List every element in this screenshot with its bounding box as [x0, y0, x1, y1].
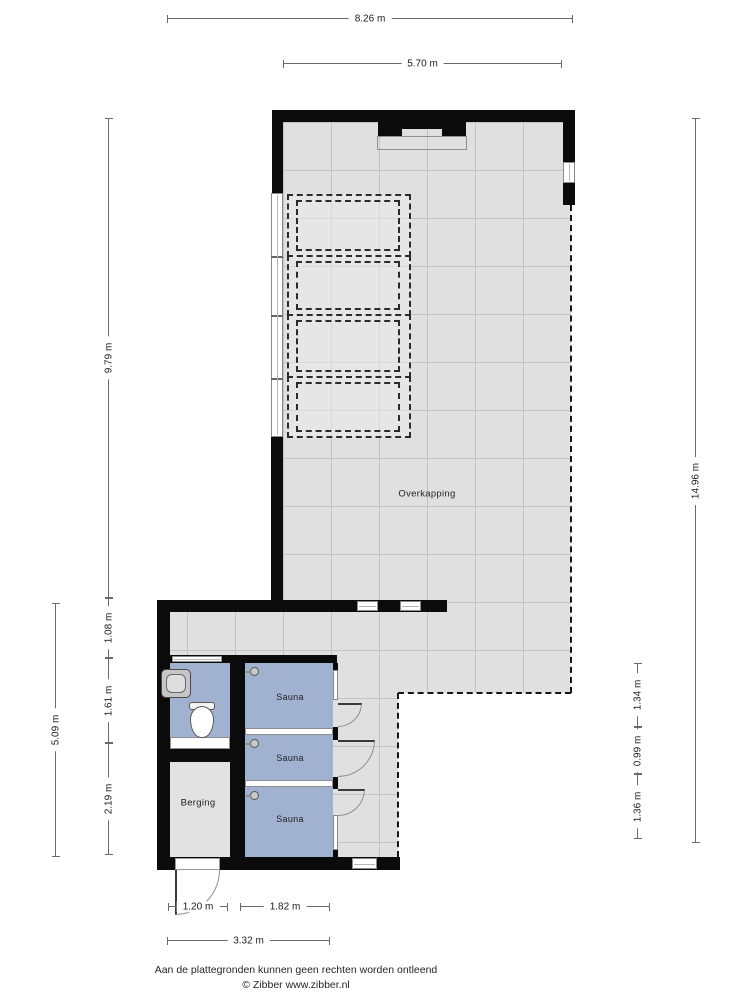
sink-icon — [161, 669, 191, 698]
sauna-light-icon — [250, 667, 259, 676]
door-opening-berging — [175, 858, 220, 870]
room-label-overkapping: Overkapping — [398, 489, 455, 500]
skylight-dashed-rect — [287, 376, 411, 438]
dim-label: 1.20 m — [177, 901, 220, 912]
window-bathroom-top — [172, 656, 222, 662]
boundary-dashed-right — [570, 205, 572, 693]
boundary-dashed-mid — [397, 693, 399, 857]
dim-right-sauna-2: 0.99 m — [637, 727, 638, 774]
skylight-inner-rect — [296, 261, 400, 310]
dim-bottom-berging: 1.20 m — [168, 906, 228, 907]
dim-bottom-total: 3.32 m — [167, 940, 330, 941]
dim-right-total: 14.96 m — [695, 118, 696, 843]
dim-left-overkapping-height: 9.79 m — [108, 118, 109, 598]
room-berging — [170, 762, 230, 857]
window-lowerbuilding-top-2 — [400, 601, 421, 611]
window-right — [563, 162, 575, 183]
wall-lowerbuilding-left — [157, 612, 170, 870]
room-label-sauna-3: Sauna — [276, 814, 304, 824]
dim-label: 5.09 m — [51, 709, 62, 752]
sauna-front-post — [333, 663, 338, 670]
window-lowerbuilding-top-1 — [357, 601, 378, 611]
room-label-berging: Berging — [181, 798, 216, 809]
dim-right-sauna-1: 1.34 m — [637, 663, 638, 727]
dim-left-berging: 2.19 m — [108, 743, 109, 855]
floorplan-canvas: Overkapping Sauna Sauna Sauna Berging 8.… — [0, 0, 750, 1000]
skylight-inner-rect — [296, 382, 400, 432]
sauna-light-icon — [250, 739, 259, 748]
sink-basin — [166, 674, 186, 693]
sauna-front-glass — [333, 670, 338, 700]
wall-right-upper — [563, 122, 575, 162]
dim-right-sauna-3: 1.36 m — [637, 774, 638, 839]
dim-label: 1.34 m — [633, 674, 644, 717]
dim-label: 3.32 m — [227, 935, 270, 946]
skylight-dashed-rect — [287, 194, 411, 257]
skylight-dashed-rect — [287, 314, 411, 378]
bathroom-door-band — [170, 737, 230, 749]
sauna-front-post — [333, 850, 338, 857]
footer-copyright: © Zibber www.zibber.nl — [242, 979, 350, 991]
dim-label: 5.70 m — [401, 58, 444, 69]
sauna-front-post — [333, 777, 338, 789]
window-mullion — [271, 256, 283, 258]
skylight-inner-rect — [296, 320, 400, 372]
dim-label: 1.36 m — [633, 785, 644, 828]
sauna-light-icon — [250, 791, 259, 800]
dim-label: 2.19 m — [104, 778, 115, 821]
window-mullion — [271, 378, 283, 380]
window-mullion — [271, 315, 283, 317]
room-label-sauna-2: Sauna — [276, 753, 304, 763]
dim-label: 1.82 m — [264, 901, 307, 912]
wall-left-upper — [272, 122, 283, 193]
dim-left-lowerbuilding: 5.09 m — [55, 603, 56, 857]
dim-label: 1.08 m — [104, 607, 115, 650]
wall-top-recess — [378, 122, 466, 129]
dim-label: 9.79 m — [104, 337, 115, 380]
dim-left-bathroom: 1.61 m — [108, 658, 109, 743]
sauna-divider — [245, 780, 333, 787]
sauna-divider — [245, 728, 333, 735]
dim-label: 1.61 m — [104, 679, 115, 722]
sauna-front-post — [333, 727, 338, 740]
dim-top-total: 8.26 m — [167, 18, 573, 19]
wall-right-lower — [563, 183, 575, 205]
dim-label: 8.26 m — [349, 13, 392, 24]
recess-outline — [377, 136, 467, 150]
sauna-front-glass — [333, 815, 338, 850]
footer-disclaimer: Aan de plattegronden kunnen geen rechten… — [155, 964, 438, 976]
boundary-dashed-bottom — [398, 692, 571, 694]
wall-bath-berging — [157, 749, 245, 762]
room-label-sauna-1: Sauna — [276, 692, 304, 702]
skylight-dashed-rect — [287, 255, 411, 316]
skylight-inner-rect — [296, 200, 400, 251]
dim-label: 0.99 m — [633, 729, 644, 772]
wall-top — [272, 110, 575, 122]
dim-bottom-sauna: 1.82 m — [240, 906, 330, 907]
window-bottom — [352, 858, 377, 869]
dim-top-overkapping: 5.70 m — [283, 63, 562, 64]
wall-mid-vertical — [230, 655, 245, 870]
wall-left-lower — [271, 437, 283, 612]
window-left-long — [271, 193, 283, 437]
dim-left-corridor: 1.08 m — [108, 598, 109, 658]
floor-overkapping-strip — [447, 600, 571, 612]
dim-label: 14.96 m — [691, 456, 702, 504]
